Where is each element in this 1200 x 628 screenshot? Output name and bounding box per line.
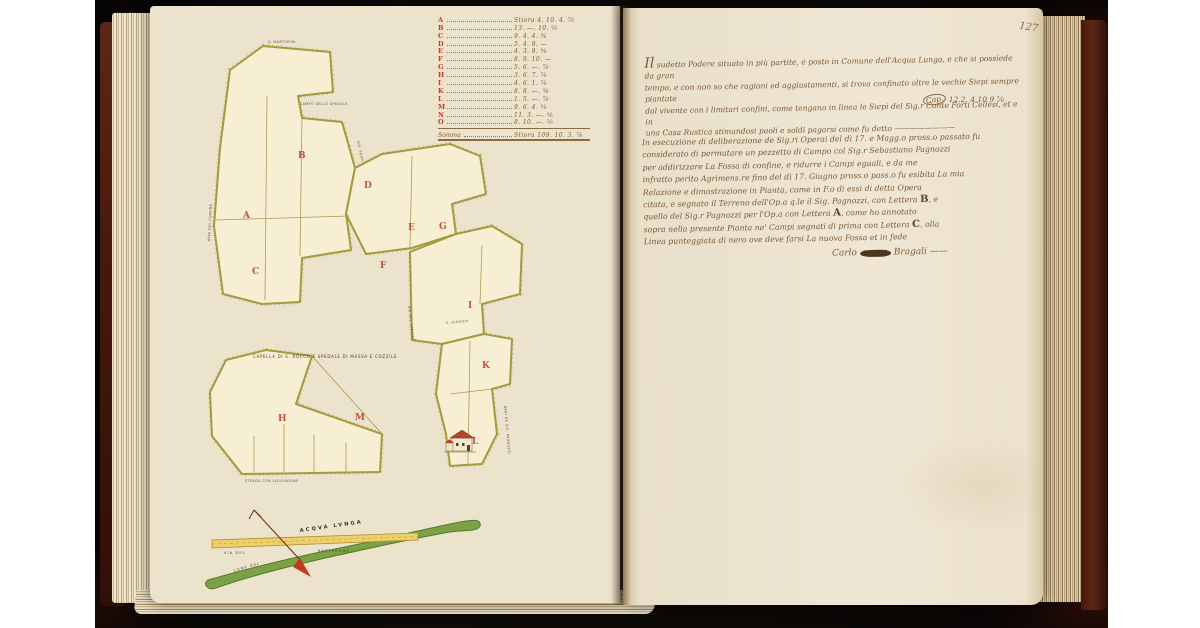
parcel-letter: M xyxy=(355,413,365,423)
hand-line-text: quello del Sig.r Pagnozzi per l'Op.a con… xyxy=(643,209,833,222)
parcel-letter: I xyxy=(468,301,472,311)
cadastral-map: A B C D E F G H I K L M S. MARTORINI CAM… xyxy=(150,6,620,603)
valuation-figures: 12.2. 4 10 9 ⅞ xyxy=(949,95,1004,104)
parcel-letter: K xyxy=(482,361,491,371)
river-ribbon xyxy=(206,520,481,588)
road-label-right: BOTTEGONE xyxy=(318,549,350,553)
book-gutter-shadow xyxy=(611,6,631,605)
river-label: ACQVA LVNGA xyxy=(299,519,363,534)
parcel-letter: F xyxy=(380,261,387,271)
boundary-label: STRADA CON LEGGIADONE xyxy=(245,479,299,483)
paragraph-2: In esecuzione di deliberazione de Sig.ri… xyxy=(642,131,988,264)
boundary-label: S. MARTORINI xyxy=(268,40,296,44)
signature-text: Carlo xyxy=(832,248,860,259)
reference-letter-A: A xyxy=(833,208,841,219)
parcel-letter: B xyxy=(298,151,306,161)
photo-background: AStiora 4. 10. 4. ⅞ B13. —. 10. ⅝ C9. 4.… xyxy=(95,0,1108,628)
parcel-north-cluster xyxy=(214,46,355,304)
paragraph-1-valuation: Cap. 12.2. 4 10 9 ⅞ xyxy=(923,94,1004,105)
hand-line-text: , come ho annotato xyxy=(841,207,917,217)
parcel-letter: L xyxy=(472,437,479,447)
parcel-southwest-cluster xyxy=(210,350,382,474)
reference-letter-C: C xyxy=(912,219,920,230)
valuation-mark: Cap. xyxy=(922,92,947,106)
book-cover-right xyxy=(1081,20,1107,610)
boundary-label: BENI DE SIG. PAGNOZZI xyxy=(503,406,511,455)
ink-blot: mano xyxy=(860,249,891,257)
parcel-letter: A xyxy=(242,211,251,221)
road-label-left: VIA DEL xyxy=(224,551,246,555)
parcel-letter: G xyxy=(439,222,447,232)
boundary-label: BENI DEL COMVNE xyxy=(207,204,213,242)
signature-text: Bragali —— xyxy=(891,246,948,257)
page-edges-right xyxy=(1039,16,1085,602)
parcel-letter: E xyxy=(408,223,415,233)
parcel-letter: H xyxy=(278,414,287,424)
left-page-map: AStiora 4. 10. 4. ⅞ B13. —. 10. ⅝ C9. 4.… xyxy=(150,6,620,603)
boundary-label: SIG. FORTI xyxy=(356,140,364,162)
folio-number: 127 xyxy=(1018,21,1039,35)
signature: Carlo mano Bragali —— xyxy=(832,244,988,259)
map-parcels xyxy=(210,46,522,474)
parcel-letter: C xyxy=(252,267,259,277)
hand-line-text: , olla xyxy=(920,219,939,228)
compass-road-river: ACQVA LVNGA VIA DEL BOTTEGONE COME DEL xyxy=(206,510,481,589)
manuscript-photo-stage: AStiora 4. 10. 4. ⅞ B13. —. 10. ⅝ C9. 4.… xyxy=(0,0,1200,628)
hand-line-text: , e xyxy=(928,195,938,204)
initial-capital: Il xyxy=(644,55,654,71)
boundary-label: CAMPO DELLO SPEDALE xyxy=(300,102,348,106)
road-band xyxy=(212,533,418,548)
right-page-text: 127 Il sudetto Podere situato in più par… xyxy=(623,8,1043,605)
parcel-letter: D xyxy=(364,181,372,191)
chapel-caption: CAPELLA DI S. ROCCO E SPEDALE DI MASSA E… xyxy=(253,354,397,359)
